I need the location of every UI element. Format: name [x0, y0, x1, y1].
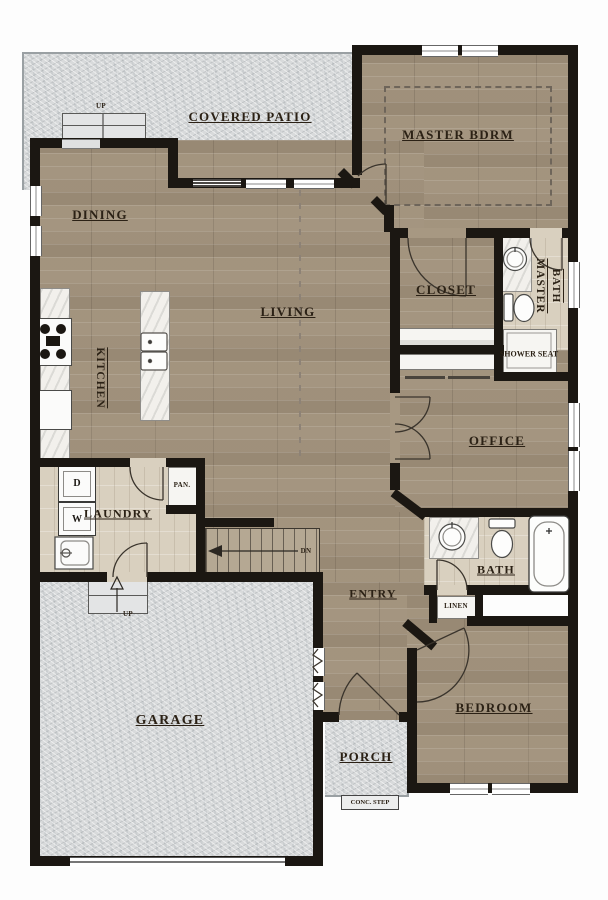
window [568, 403, 580, 447]
sidelight-window [313, 648, 325, 676]
wall [313, 582, 323, 866]
wall [390, 228, 408, 238]
label-living: LIVING [261, 304, 316, 320]
window [492, 783, 530, 795]
window [30, 186, 42, 216]
closet-shelf [398, 328, 498, 346]
wall [30, 572, 107, 582]
floor-plan: D W [0, 0, 608, 900]
label-garage: GARAGE [136, 713, 205, 729]
kitchen-cabinet [38, 390, 72, 430]
label-kitchen: KITCHEN [94, 347, 106, 408]
wall [562, 228, 578, 238]
sidelight-window [313, 682, 325, 710]
front-door-threshold [339, 710, 399, 720]
garage-step-2 [88, 595, 148, 614]
wall [166, 505, 205, 514]
wall [30, 458, 130, 467]
door-opening [390, 393, 400, 463]
wall [390, 345, 504, 354]
tray-ceiling-outline [384, 86, 552, 206]
wall [30, 138, 176, 148]
label-bedroom: BEDROOM [455, 700, 532, 716]
wall [494, 372, 578, 381]
wall [466, 228, 530, 238]
cased-opening-line [405, 376, 445, 379]
window [568, 262, 580, 308]
bath-vanity [429, 517, 479, 559]
label-pantry: PAN. [174, 481, 191, 489]
washer-label: W [72, 514, 82, 525]
wall [424, 585, 437, 595]
window [462, 45, 498, 57]
kitchen-counter [40, 288, 70, 462]
door-opening [408, 228, 466, 238]
dryer-label: D [73, 478, 80, 489]
window [294, 179, 334, 189]
wall [467, 585, 578, 595]
wall [390, 238, 400, 393]
label-porch: PORCH [340, 749, 393, 765]
label-linen: LINEN [444, 602, 468, 610]
label-master-bdrm: MASTER BDRM [402, 127, 514, 143]
wall [196, 518, 274, 527]
label-office: OFFICE [469, 433, 525, 449]
label-covered-patio: COVERED PATIO [188, 109, 311, 125]
label-up-patio: UP [96, 102, 106, 110]
window [568, 451, 580, 491]
conc-step-box: CONC. STEP [341, 795, 399, 810]
built-in-niche [398, 354, 502, 370]
wall [494, 238, 503, 380]
label-shower-seat: SHOWER SEAT [500, 350, 558, 359]
stove [36, 318, 72, 366]
wall [390, 463, 400, 490]
label-dn: DN [301, 547, 312, 555]
label-up-garage: UP [123, 610, 133, 618]
door-opening [437, 585, 467, 595]
door-opening [130, 458, 166, 467]
wall [352, 45, 362, 175]
door-opening [107, 572, 147, 582]
cased-opening-line [448, 376, 490, 379]
wall [429, 595, 437, 623]
sliding-glass-door [193, 179, 241, 187]
label-entry: ENTRY [349, 587, 397, 602]
window [246, 179, 286, 189]
wall [147, 572, 323, 582]
label-master-bath-word2: BATH [550, 269, 562, 303]
wall [399, 712, 417, 722]
wall [420, 508, 578, 517]
label-laundry: LAUNDRY [84, 507, 152, 522]
window [30, 226, 42, 256]
label-bath: BATH [477, 563, 515, 578]
window [422, 45, 458, 57]
door-opening [530, 228, 562, 238]
window [450, 783, 488, 795]
garage-door-opening [70, 857, 285, 867]
master-bath-vanity [500, 234, 532, 292]
label-closet: CLOSET [416, 282, 476, 298]
dryer: D [58, 466, 96, 502]
label-conc-step: CONC. STEP [351, 799, 390, 806]
kitchen-island [140, 291, 170, 421]
ceiling-break-line [299, 190, 301, 458]
wall [467, 616, 578, 626]
patio-door-opening [62, 139, 100, 149]
label-dining: DINING [72, 207, 128, 223]
label-master-bath-word1: MASTER [534, 258, 546, 313]
wall [313, 712, 339, 722]
